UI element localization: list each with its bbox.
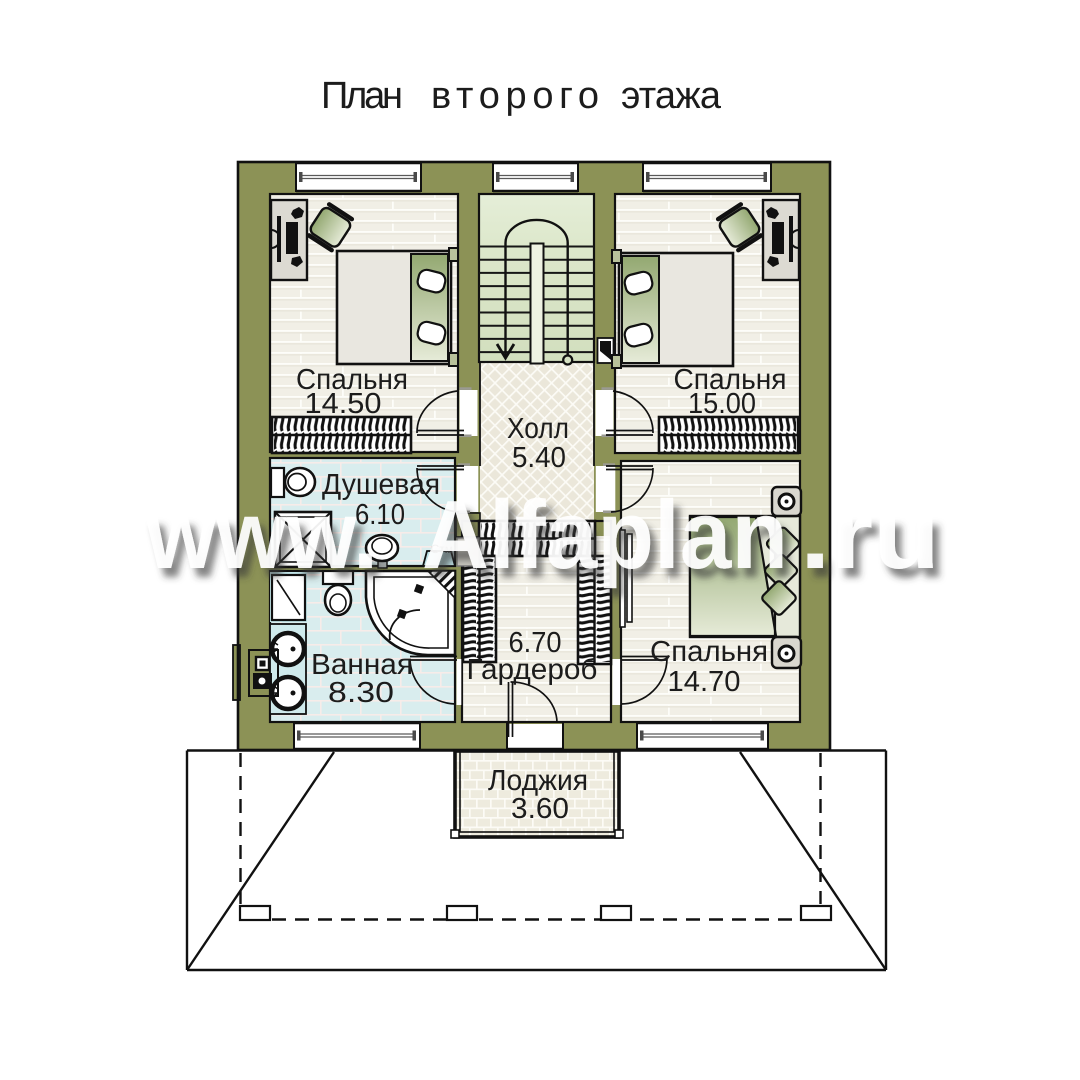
svg-text:План: План — [321, 75, 403, 117]
svg-text:www.: www. — [145, 480, 378, 589]
svg-text:.ru: .ru — [800, 480, 940, 589]
svg-text:14.70: 14.70 — [668, 666, 741, 698]
svg-text:14.50: 14.50 — [305, 388, 382, 420]
svg-text:3.60: 3.60 — [511, 793, 569, 825]
svg-text:8.30: 8.30 — [328, 677, 394, 709]
svg-text:15.00: 15.00 — [688, 388, 756, 420]
svg-text:Холл: Холл — [507, 413, 569, 445]
svg-text:Alfaplan: Alfaplan — [422, 480, 788, 589]
svg-text:этажа: этажа — [621, 75, 722, 117]
svg-text:Спальня: Спальня — [650, 636, 768, 668]
svg-text:Гардероб: Гардероб — [467, 654, 598, 686]
svg-text:5.40: 5.40 — [512, 442, 566, 474]
